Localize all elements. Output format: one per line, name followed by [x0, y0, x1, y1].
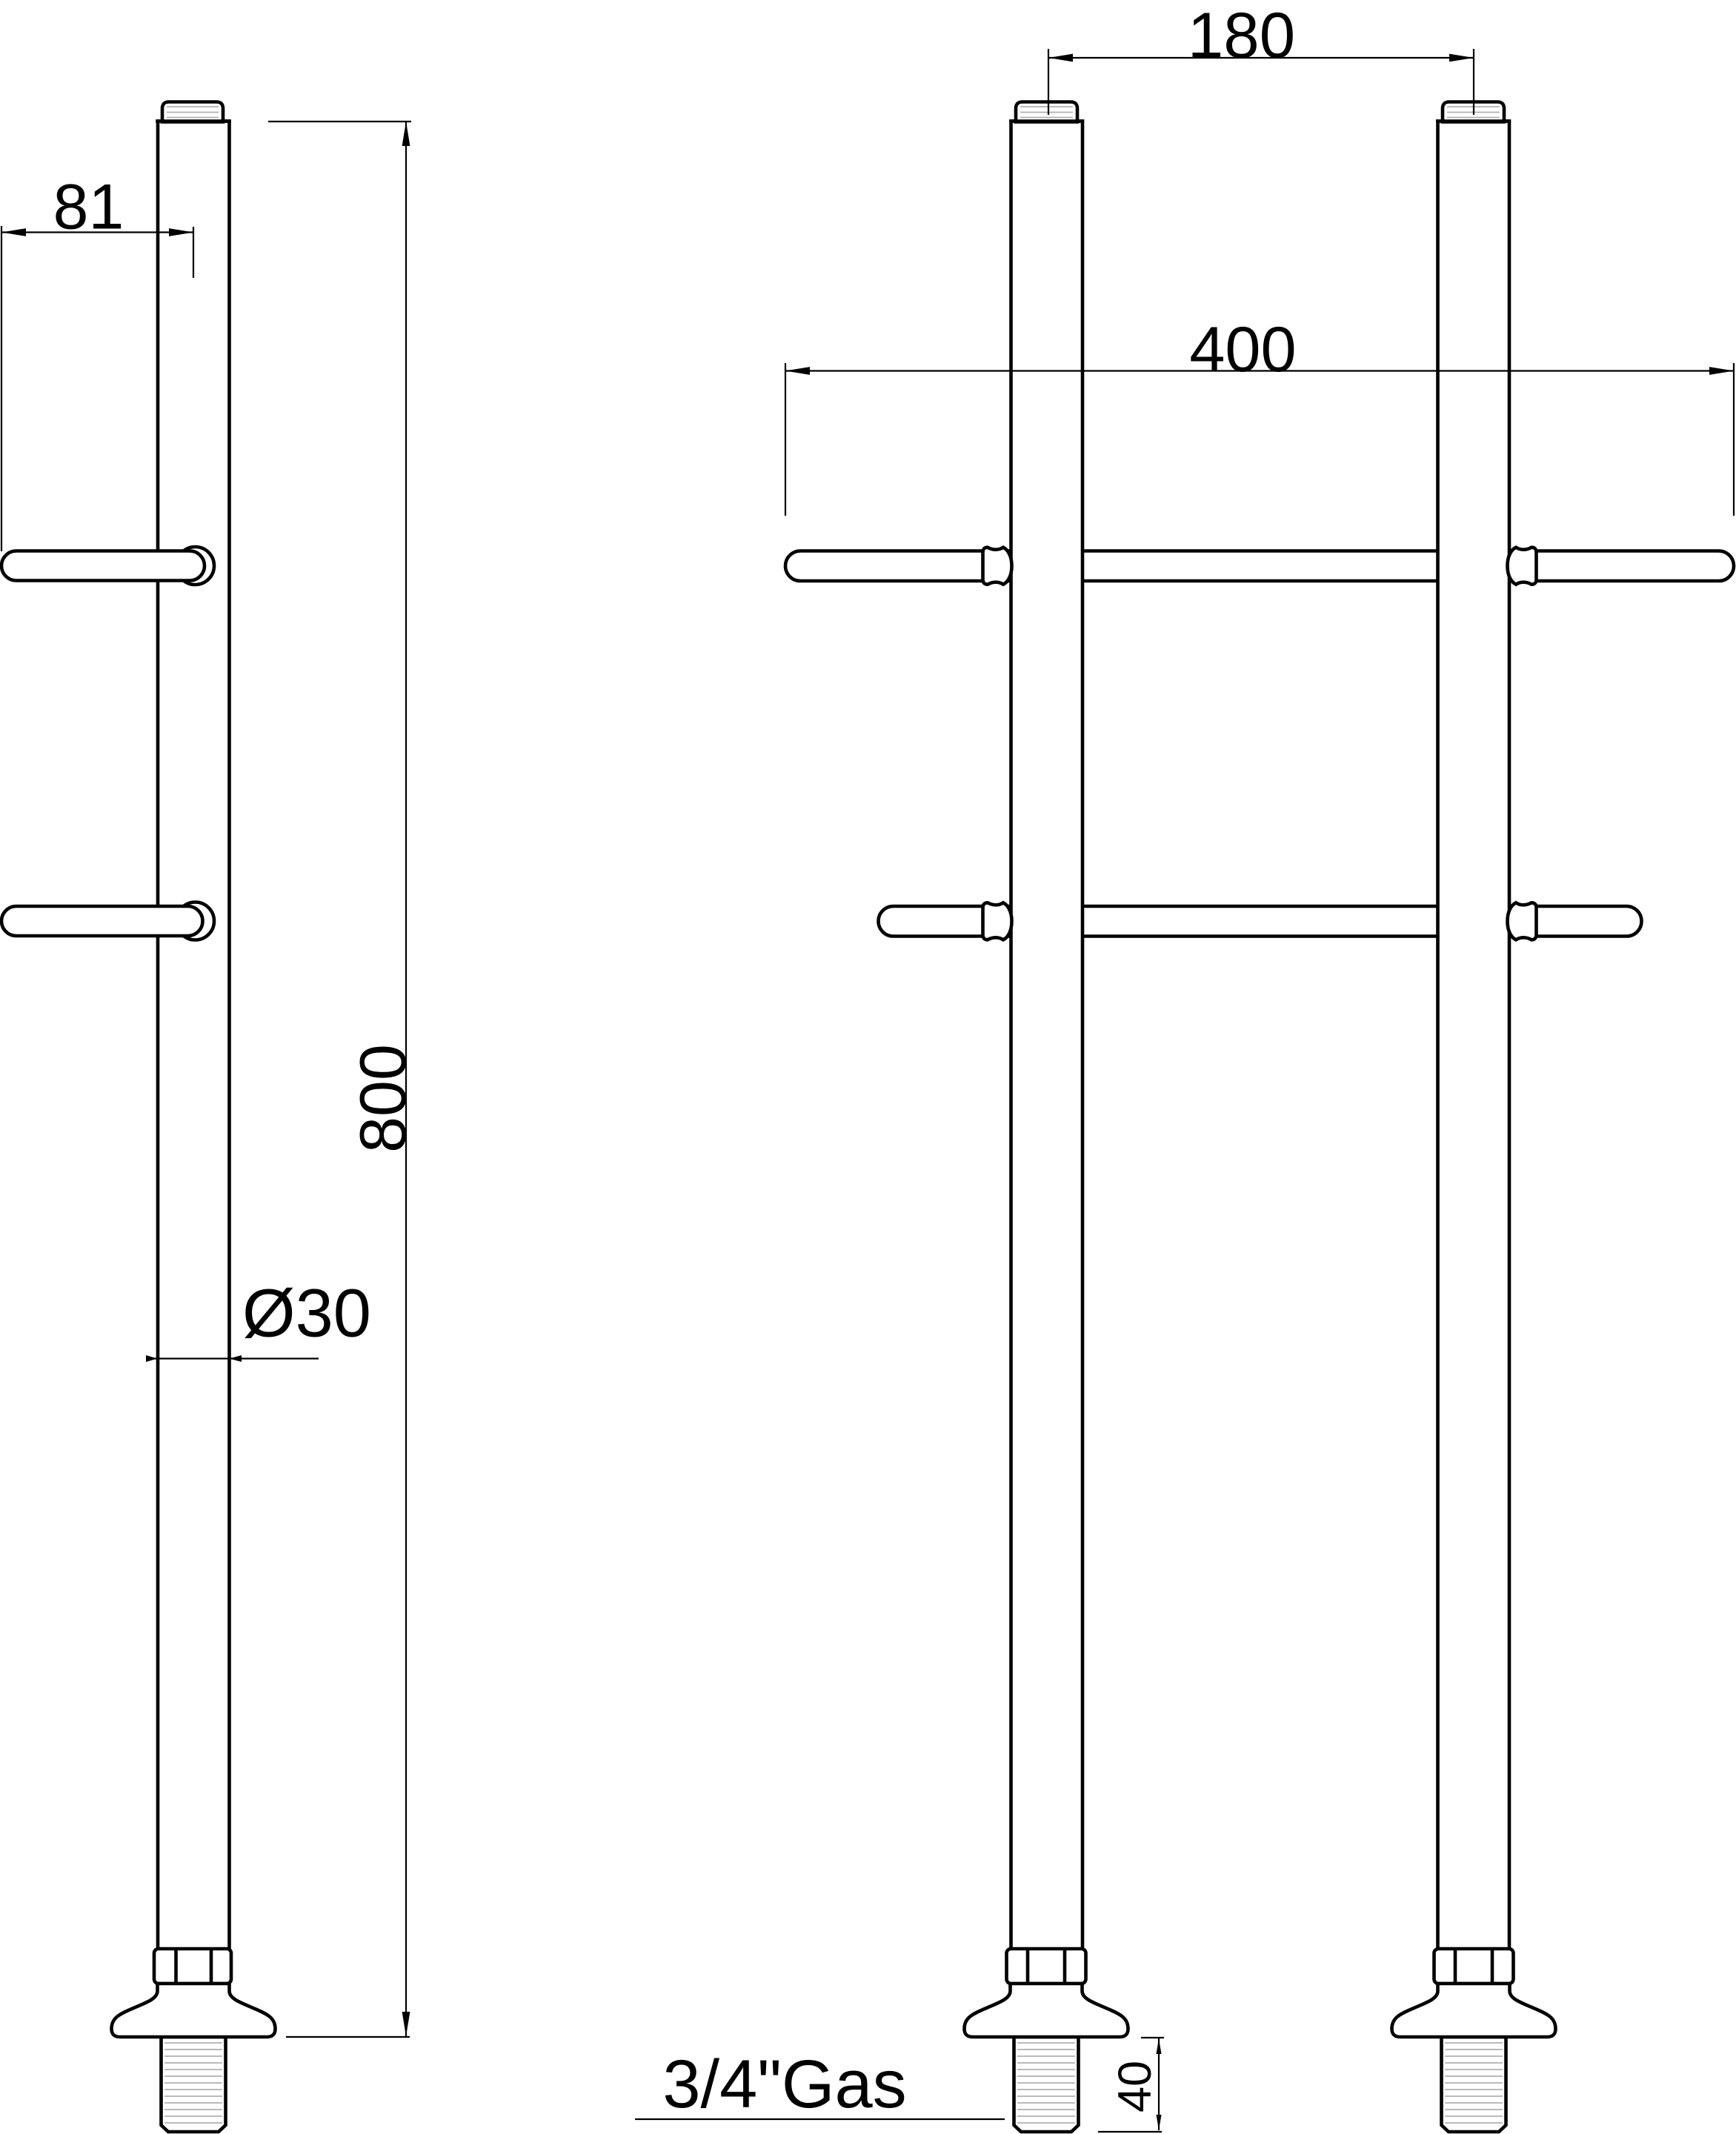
svg-text:400: 400 [1189, 314, 1296, 385]
svg-text:3/4"Gas: 3/4"Gas [662, 2047, 906, 2122]
svg-text:Ø30: Ø30 [242, 1276, 371, 1352]
svg-text:800: 800 [346, 1044, 419, 1153]
svg-text:40: 40 [1109, 2061, 1161, 2113]
svg-text:81: 81 [53, 172, 124, 243]
svg-text:180: 180 [1188, 0, 1295, 72]
